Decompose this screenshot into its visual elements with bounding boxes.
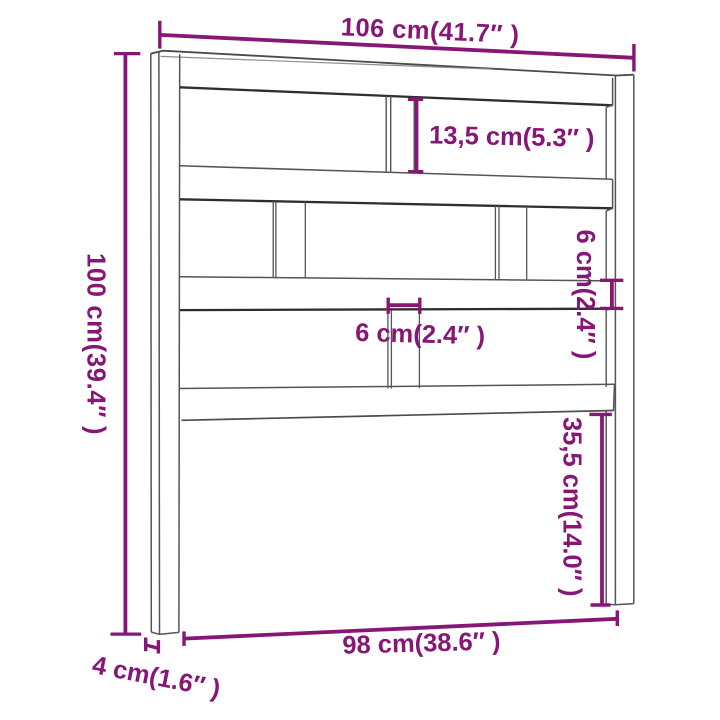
svg-text:100 cm(39.4″ ): 100 cm(39.4″ ) bbox=[82, 253, 110, 435]
svg-text:6 cm(2.4″ ): 6 cm(2.4″ ) bbox=[571, 230, 599, 360]
svg-text:98 cm(38.6″ ): 98 cm(38.6″ ) bbox=[342, 627, 501, 659]
svg-text:6 cm(2.4″ ): 6 cm(2.4″ ) bbox=[355, 319, 486, 350]
svg-text:35,5 cm(14.0″ ): 35,5 cm(14.0″ ) bbox=[558, 417, 586, 596]
svg-text:13,5 cm(5.3″ ): 13,5 cm(5.3″ ) bbox=[429, 121, 595, 152]
